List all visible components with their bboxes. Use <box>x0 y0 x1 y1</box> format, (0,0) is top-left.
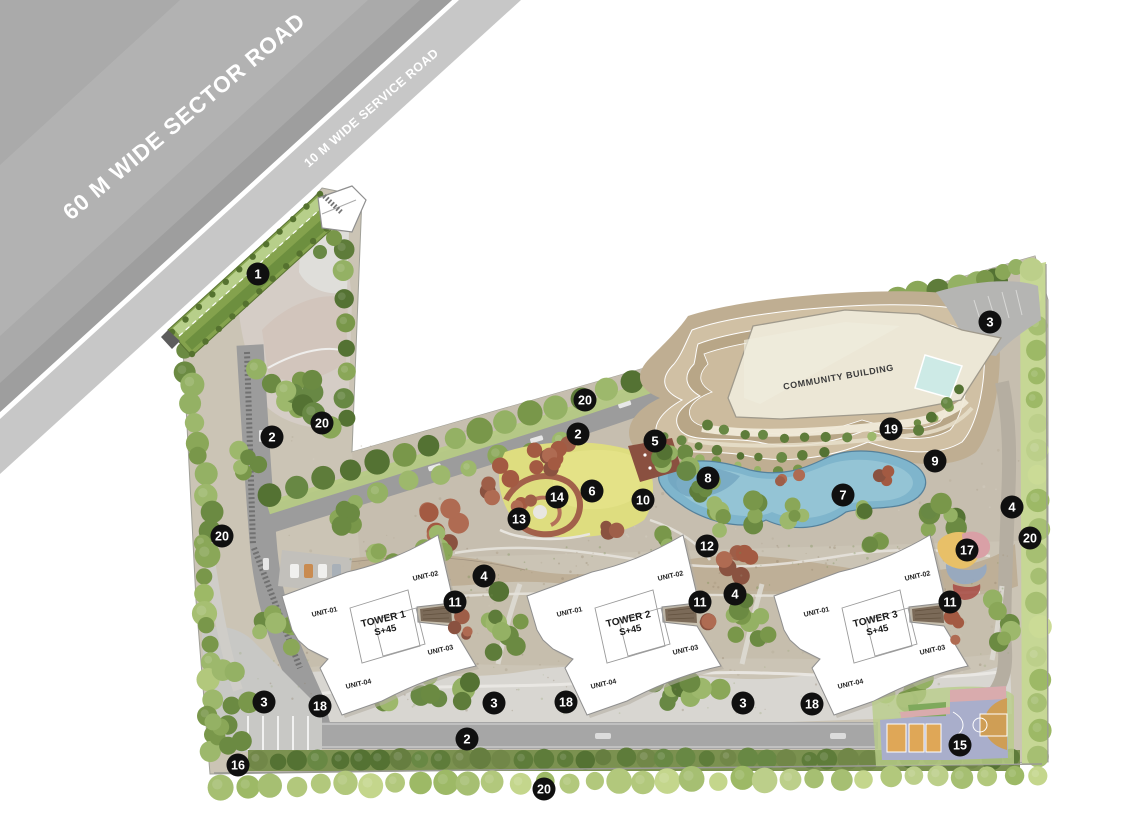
svg-text:20: 20 <box>578 394 592 408</box>
svg-text:20: 20 <box>537 783 551 797</box>
svg-text:16: 16 <box>231 759 245 773</box>
svg-text:3: 3 <box>260 695 267 710</box>
svg-text:2: 2 <box>268 430 275 445</box>
svg-text:20: 20 <box>215 530 229 544</box>
svg-text:5: 5 <box>651 434 658 449</box>
svg-text:20: 20 <box>1023 532 1037 546</box>
svg-text:4: 4 <box>731 587 739 602</box>
svg-text:1: 1 <box>254 267 261 282</box>
svg-text:3: 3 <box>739 696 746 711</box>
svg-text:11: 11 <box>943 596 956 610</box>
svg-text:13: 13 <box>512 513 526 527</box>
svg-text:8: 8 <box>704 471 711 486</box>
svg-text:11: 11 <box>693 596 706 610</box>
svg-text:15: 15 <box>953 739 967 753</box>
svg-text:2: 2 <box>463 732 470 747</box>
svg-text:2: 2 <box>574 427 581 442</box>
svg-text:12: 12 <box>700 540 714 554</box>
svg-text:10: 10 <box>636 494 650 508</box>
svg-text:11: 11 <box>448 596 461 610</box>
svg-text:3: 3 <box>986 315 993 330</box>
svg-text:6: 6 <box>588 484 595 499</box>
svg-text:7: 7 <box>839 488 846 503</box>
svg-text:18: 18 <box>559 696 573 710</box>
svg-text:20: 20 <box>315 417 329 431</box>
svg-text:18: 18 <box>805 698 819 712</box>
svg-text:18: 18 <box>313 700 327 714</box>
svg-text:17: 17 <box>960 544 974 558</box>
svg-text:4: 4 <box>480 569 488 584</box>
svg-text:3: 3 <box>490 696 497 711</box>
svg-text:4: 4 <box>1008 500 1016 515</box>
svg-text:14: 14 <box>550 491 564 505</box>
svg-text:19: 19 <box>884 423 898 437</box>
svg-text:9: 9 <box>931 454 938 469</box>
